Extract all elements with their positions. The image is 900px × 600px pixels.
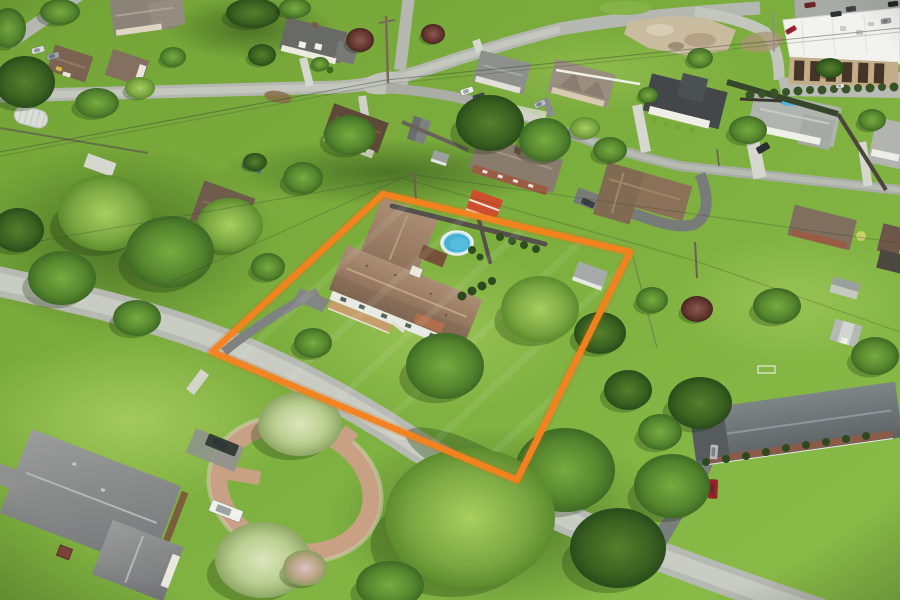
screenshot-root — [0, 0, 900, 600]
vignette — [0, 0, 900, 600]
aerial-photo — [0, 0, 900, 600]
